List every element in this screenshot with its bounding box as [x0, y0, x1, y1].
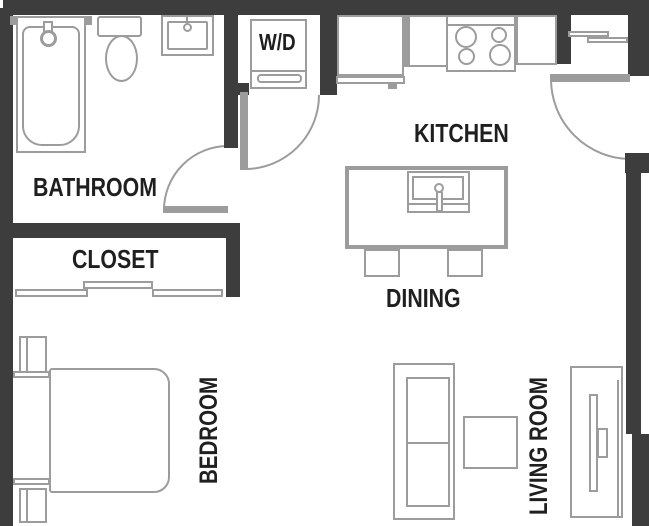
wall-entry-west	[557, 15, 571, 64]
wall-right-stub	[625, 153, 649, 173]
bar-stool-right	[447, 249, 483, 277]
living-room-label: LIVING ROOM	[527, 377, 552, 515]
laundry-door-leaf	[240, 92, 248, 170]
nightstand-bottom	[19, 488, 47, 523]
wall-right-mid	[626, 173, 641, 434]
island-faucet-icon	[434, 183, 444, 193]
wall-right-lower	[632, 434, 649, 526]
refrigerator-door	[336, 76, 405, 84]
entry-door-leaf	[550, 74, 630, 82]
toilet-bowl	[105, 35, 138, 82]
closet-label: CLOSET	[72, 246, 158, 272]
closet-slider-middle	[83, 281, 153, 289]
wall-closet-east	[226, 223, 240, 297]
nightstand-top	[19, 336, 47, 373]
bed-frame-bottom	[13, 478, 50, 485]
wall-laundry-east	[320, 15, 337, 95]
tv-console-inner-line	[617, 380, 619, 518]
wall-top	[3, 0, 649, 15]
bed	[49, 368, 170, 493]
stove-back-panel-line	[448, 24, 514, 26]
entry-shelf-front	[587, 37, 628, 43]
bedroom-label: BEDROOM	[197, 377, 222, 484]
bathroom-door-leaf	[163, 206, 228, 213]
bed-frame-top	[13, 371, 50, 378]
closet-slider-left	[15, 289, 88, 297]
bar-stool-left	[364, 249, 400, 277]
dining-label: DINING	[386, 285, 461, 311]
kitchen-counter-left	[408, 15, 448, 67]
closet-slider-right	[152, 289, 223, 297]
refrigerator	[337, 15, 404, 76]
nightstand-top-divider	[26, 338, 28, 371]
wall-bathroom-east	[224, 15, 238, 148]
toilet-tank	[97, 16, 142, 37]
wall-northeast-corner	[628, 0, 649, 76]
sofa-cushion-bottom	[406, 442, 450, 507]
wall-closet-top	[12, 223, 240, 238]
bathtub-drain-icon	[40, 30, 57, 47]
kitchen-label: KITCHEN	[414, 120, 509, 146]
burner-top-left-icon	[455, 26, 477, 48]
laundry-label: W/D	[259, 31, 296, 54]
burner-top-right-icon	[491, 27, 507, 43]
tv-mount	[597, 428, 608, 458]
wall-left	[0, 8, 13, 526]
washer-dryer-door-line	[252, 70, 305, 72]
bathroom-door-arc-icon	[163, 145, 229, 211]
coffee-table	[463, 416, 518, 469]
nightstand-bottom-divider	[26, 490, 28, 521]
kitchen-counter-right	[516, 15, 557, 65]
laundry-door-arc-icon	[244, 94, 320, 170]
bathroom-sink-faucet-icon	[183, 23, 192, 32]
floor-plan: W/D BATHROOM CLOSET KITCHEN DINING B	[0, 0, 649, 526]
washer-dryer-handle	[257, 74, 302, 83]
burner-bottom-left-icon	[458, 48, 475, 65]
sofa-cushion-top	[406, 377, 450, 444]
island-faucet-stem-icon	[436, 191, 443, 212]
entry-door-arc-icon	[550, 78, 632, 160]
burner-bottom-right-icon	[489, 44, 511, 66]
refrigerator-handle-icon	[388, 84, 397, 89]
bathroom-label: BATHROOM	[33, 174, 157, 200]
